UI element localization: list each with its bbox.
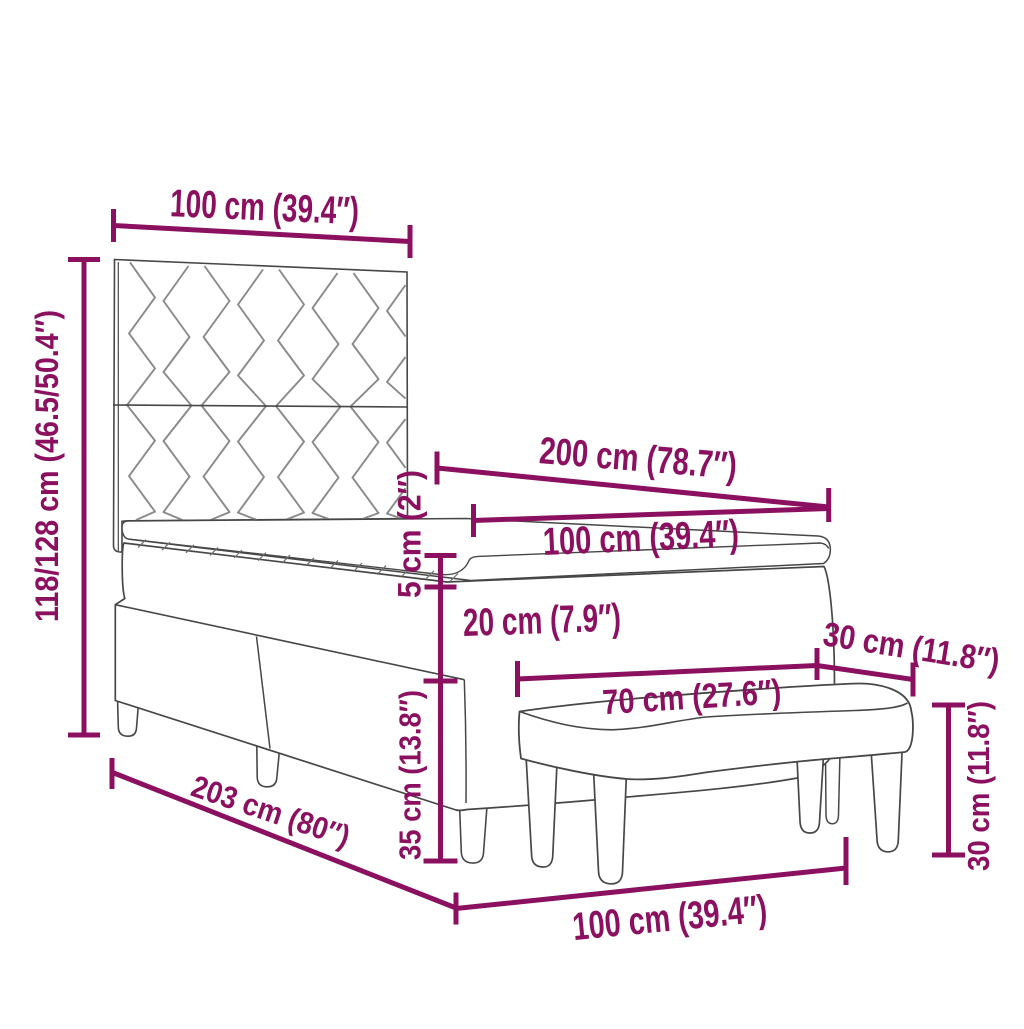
svg-text:118/128 cm (46.5/50.4″): 118/128 cm (46.5/50.4″) xyxy=(29,310,65,622)
svg-text:20 cm (7.9″): 20 cm (7.9″) xyxy=(462,597,621,645)
svg-text:5 cm (2″): 5 cm (2″) xyxy=(391,470,427,598)
svg-text:100 cm (39.4″): 100 cm (39.4″) xyxy=(542,513,740,565)
svg-text:30 cm (11.8″): 30 cm (11.8″) xyxy=(961,701,996,871)
svg-text:35 cm (13.8″): 35 cm (13.8″) xyxy=(393,690,428,860)
svg-text:100 cm (39.4″): 100 cm (39.4″) xyxy=(169,182,360,233)
